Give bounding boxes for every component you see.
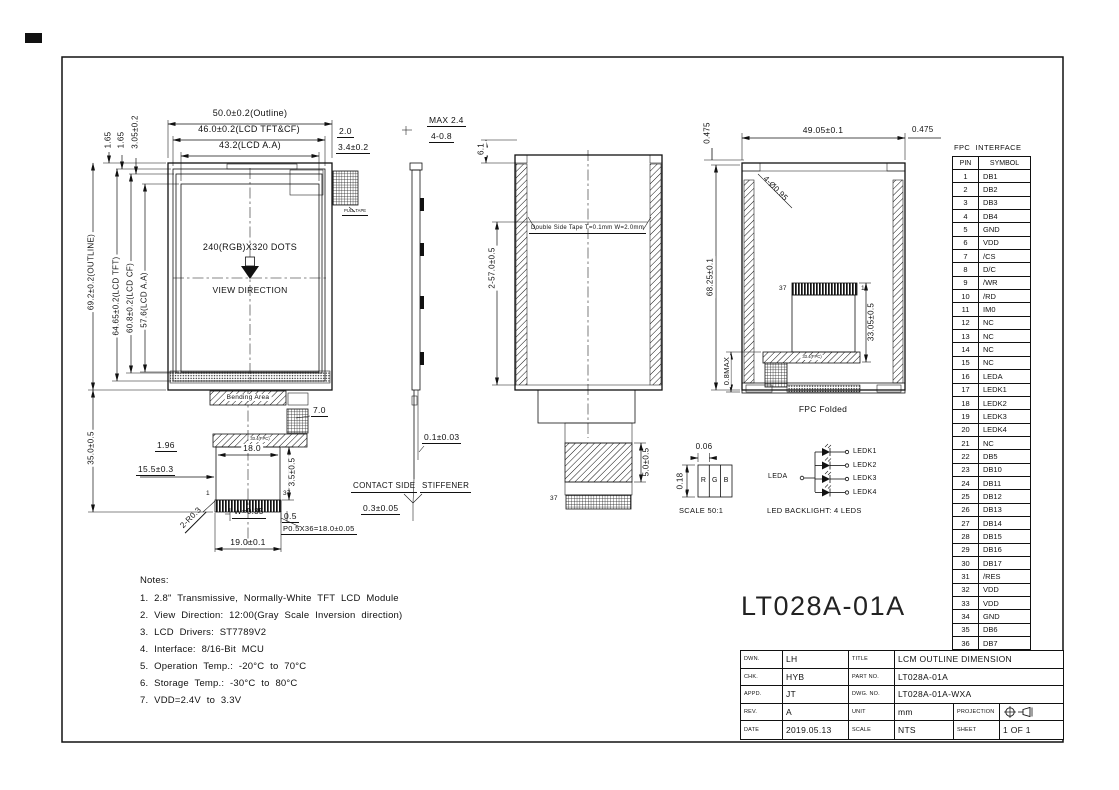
- pull-tape-label: PULL TAPE: [342, 209, 368, 216]
- pin-symbol: DB11: [979, 479, 1001, 488]
- dim-pin-width: W=0.35: [232, 508, 266, 519]
- dim-155: 15.5±0.3: [136, 465, 175, 476]
- side-view-linework: [402, 126, 424, 521]
- dim-7: 7.0: [311, 406, 328, 417]
- pin-symbol: LEDK4: [979, 425, 1007, 434]
- dwg-no-label: DWG. NO.: [849, 686, 895, 704]
- fpc-table-body: 1DB12DB23DB34DB45GND6VDD7/CS8D/C9/WR10/R…: [953, 170, 1030, 663]
- pin-number: 36: [953, 637, 979, 649]
- projection-symbol: [1000, 704, 1063, 722]
- pixel-b-label: B: [724, 477, 729, 485]
- table-row: 9/WR: [953, 277, 1030, 290]
- pin-number: 8: [953, 263, 979, 275]
- back-pin-first: 1: [861, 285, 865, 292]
- table-row: 12NC: [953, 317, 1030, 330]
- stiffener-label: STIFFENER: [420, 482, 471, 493]
- pin-number: 22: [953, 450, 979, 462]
- table-row: 26DB13: [953, 504, 1030, 517]
- pin-symbol: GND: [979, 225, 1000, 234]
- pin-number: 27: [953, 517, 979, 529]
- dim-fpc-height: 35.0±0.5: [88, 429, 97, 466]
- pin-number: 3: [953, 197, 979, 209]
- note-item: 6. Storage Temp.: -30°C to 80°C: [140, 675, 402, 692]
- pin-number: 17: [953, 384, 979, 396]
- appd-label: APPD.: [741, 686, 783, 704]
- table-row: 17LEDK1: [953, 384, 1030, 397]
- table-row: 34GND: [953, 610, 1030, 623]
- pin-symbol: DB2: [979, 185, 998, 194]
- note-item: 4. Interface: 8/16-Bit MCU: [140, 641, 402, 658]
- table-row: 1DB1: [953, 170, 1030, 183]
- table-row: 33VDD: [953, 597, 1030, 610]
- pin-symbol: DB5: [979, 452, 998, 461]
- pin-symbol: DB13: [979, 505, 1002, 514]
- pin-symbol: NC: [979, 439, 994, 448]
- back-view-linework: [704, 133, 941, 393]
- led-anode-label: LEDA: [768, 473, 788, 481]
- dim-outline-width: 50.0±0.2(Outline): [213, 109, 288, 119]
- dwn-label: DWN.: [741, 651, 783, 669]
- table-row: 28DB15: [953, 530, 1030, 543]
- dwg-no-value: LT028A-01A-WXA: [895, 686, 1063, 704]
- dim-08max: 0.8MAX: [723, 355, 731, 387]
- pixel-r-label: R: [701, 477, 706, 485]
- table-row: 10/RD: [953, 290, 1030, 303]
- dim-05: 0.5: [282, 512, 299, 523]
- pin-number: 19: [953, 410, 979, 422]
- notes-heading: Notes:: [140, 575, 402, 586]
- dim-max-thickness: MAX 2.4: [427, 116, 466, 127]
- dim-18: 18.0: [241, 444, 263, 453]
- fpc-folded-caption: FPC Folded: [799, 405, 847, 414]
- pin-symbol: D/C: [979, 265, 996, 274]
- dim-outline-height: 69.2±0.2(OUTLINE): [88, 232, 97, 312]
- pin-symbol: DB10: [979, 465, 1002, 474]
- pin-symbol: VDD: [979, 599, 999, 608]
- table-row: 14NC: [953, 343, 1030, 356]
- table-row: 24DB11: [953, 477, 1030, 490]
- table-row: 35DB6: [953, 624, 1030, 637]
- table-row: 6VDD: [953, 237, 1030, 250]
- pin-symbol: GND: [979, 612, 1000, 621]
- dim-offset-right: 0.475: [912, 126, 934, 135]
- back-pin-last: 37: [779, 285, 787, 292]
- pin-number: 2: [953, 183, 979, 195]
- note-item: 1. 2.8" Transmissive, Normally-White TFT…: [140, 590, 402, 607]
- pin-symbol: DB6: [979, 625, 998, 634]
- dim-330: 33.05±0.5: [868, 301, 877, 343]
- pin-symbol: /WR: [979, 278, 998, 287]
- pin-symbol: NC: [979, 318, 994, 327]
- dim-gap-2: 3.4±0.2: [336, 143, 370, 154]
- third-angle-projection-icon: [1003, 705, 1037, 719]
- dim-tabs: 4-0.8: [429, 132, 454, 143]
- dim-back-height: 68.25±0.1: [707, 256, 716, 298]
- note-item: 2. View Direction: 12:00(Gray Scale Inve…: [140, 607, 402, 624]
- pin-number: 13: [953, 330, 979, 342]
- sheet-value: 1 OF 1: [1000, 721, 1063, 739]
- contact-side-label: CONTACT SIDE: [351, 482, 417, 493]
- notes-section: Notes: 1. 2.8" Transmissive, Normally-Wh…: [140, 575, 402, 709]
- dim-cf-height: 60.8±0.2(LCD CF): [127, 261, 136, 335]
- pin-symbol: /RD: [979, 292, 996, 301]
- registration-mark: [25, 33, 42, 43]
- pin-number: 7: [953, 250, 979, 262]
- pin-symbol: DB17: [979, 559, 1002, 568]
- pin-symbol: LEDK1: [979, 385, 1007, 394]
- pin-number: 23: [953, 464, 979, 476]
- chk-value: HYB: [783, 669, 849, 687]
- pin-symbol: DB12: [979, 492, 1002, 501]
- led-circuit-linework: [800, 444, 849, 497]
- pixel-g-label: G: [712, 477, 718, 485]
- section-pin-last: 37: [550, 495, 558, 502]
- pin-symbol: /RES: [979, 572, 1001, 581]
- table-row: 13NC: [953, 330, 1030, 343]
- pin-number: 29: [953, 544, 979, 556]
- chk-label: CHK.: [741, 669, 783, 687]
- dim-top-offset-1: 1.65: [105, 132, 114, 149]
- table-row: 30DB17: [953, 557, 1030, 570]
- dim-offset-left: 0.475: [704, 122, 713, 144]
- pixel-detail-linework: [682, 453, 732, 497]
- pin-symbol: IM0: [979, 305, 996, 314]
- fpc-table-title: FPC INTERFACE: [954, 143, 1021, 152]
- dim-tft-width: 46.0±0.2(LCD TFT&CF): [198, 125, 300, 135]
- pin-number: 5: [953, 223, 979, 235]
- table-row: 19LEDK3: [953, 410, 1030, 423]
- table-row: 7/CS: [953, 250, 1030, 263]
- table-row: 11IM0: [953, 303, 1030, 316]
- pin-number: 20: [953, 424, 979, 436]
- pin-symbol: DB3: [979, 198, 998, 207]
- fpc-bar-label: 33.4(FPC): [248, 437, 271, 442]
- pin-number: 10: [953, 290, 979, 302]
- scale-value: NTS: [895, 721, 954, 739]
- dim-57: 2-57.0±0.5: [489, 245, 498, 290]
- pin-symbol: DB14: [979, 519, 1002, 528]
- fpc-interface-table: PIN SYMBOL 1DB12DB23DB34DB45GND6VDD7/CS8…: [952, 156, 1031, 664]
- led-cathode-label: LEDK2: [853, 462, 877, 470]
- table-row: 36DB7: [953, 637, 1030, 650]
- dim-top-offset-2: 1.65: [118, 132, 127, 149]
- note-item: 7. VDD=2.4V to 3.3V: [140, 692, 402, 709]
- table-row: 21NC: [953, 437, 1030, 450]
- appd-value: JT: [783, 686, 849, 704]
- part-no-label: PART NO.: [849, 669, 895, 687]
- table-row: 8D/C: [953, 263, 1030, 276]
- led-cathode-label: LEDK4: [853, 489, 877, 497]
- pin-number: 25: [953, 490, 979, 502]
- dim-pixel-height: 0.18: [677, 471, 686, 492]
- dim-50: 5.0±0.5: [643, 446, 652, 479]
- dim-pitch: P0.5X36=18.0±0.05: [281, 525, 357, 535]
- pin-number: 35: [953, 624, 979, 636]
- pin-number: 21: [953, 437, 979, 449]
- dim-61: 6.1: [478, 141, 487, 157]
- table-row: 22DB5: [953, 450, 1030, 463]
- table-row: 31/RES: [953, 570, 1030, 583]
- pin-symbol: DB16: [979, 545, 1002, 554]
- part-number-large: LT028A-01A: [741, 591, 906, 622]
- pin-number: 6: [953, 237, 979, 249]
- table-row: 4DB4: [953, 210, 1030, 223]
- pin-first-marker: 1: [206, 490, 210, 497]
- table-row: 2DB2: [953, 183, 1030, 196]
- note-item: 5. Operation Temp.: -20°C to 70°C: [140, 658, 402, 675]
- header-symbol: SYMBOL: [979, 160, 1030, 167]
- table-row: 25DB12: [953, 490, 1030, 503]
- projection-label: PROJECTION: [954, 704, 1000, 722]
- dim-gap-1: 2.0: [337, 127, 354, 138]
- table-header: PIN SYMBOL: [953, 157, 1030, 170]
- pin-number: 14: [953, 343, 979, 355]
- pin-number: 26: [953, 504, 979, 516]
- pin-symbol: NC: [979, 345, 994, 354]
- pin-symbol: DB1: [979, 172, 998, 181]
- sheet-label: SHEET: [954, 721, 1000, 739]
- header-pin: PIN: [953, 157, 979, 169]
- pin-symbol: VDD: [979, 585, 999, 594]
- pin-number: 24: [953, 477, 979, 489]
- pin-number: 16: [953, 370, 979, 382]
- dim-tft-height: 64.65±0.2(LCD TFT): [113, 254, 122, 337]
- pixel-scale-caption: SCALE 50:1: [679, 507, 723, 515]
- table-row: 18LEDK2: [953, 397, 1030, 410]
- notes-list: 1. 2.8" Transmissive, Normally-White TFT…: [140, 590, 402, 709]
- bending-area-label: Bending Area: [225, 394, 272, 401]
- dim-top-offset-3: 3.05±0.2: [132, 115, 141, 148]
- table-row: 20LEDK4: [953, 424, 1030, 437]
- table-row: 27DB14: [953, 517, 1030, 530]
- title-label: TITLE: [849, 651, 895, 669]
- led-cathode-label: LEDK1: [853, 448, 877, 456]
- pin-number: 18: [953, 397, 979, 409]
- view-direction-label: VIEW DIRECTION: [212, 286, 287, 295]
- pin-number: 9: [953, 277, 979, 289]
- table-row: 5GND: [953, 223, 1030, 236]
- pin-number: 31: [953, 570, 979, 582]
- pin-last-marker: 37: [283, 490, 291, 497]
- pin-number: 33: [953, 597, 979, 609]
- title-value: LCM OUTLINE DIMENSION: [895, 651, 1063, 669]
- table-row: 32VDD: [953, 584, 1030, 597]
- pin-symbol: DB4: [979, 212, 998, 221]
- drawing-sheet: 50.0±0.2(Outline) 46.0±0.2(LCD TFT&CF) 4…: [0, 0, 1119, 790]
- pin-number: 28: [953, 530, 979, 542]
- pin-number: 4: [953, 210, 979, 222]
- pin-number: 15: [953, 357, 979, 369]
- scale-label: SCALE: [849, 721, 895, 739]
- pin-symbol: NC: [979, 332, 994, 341]
- rev-value: A: [783, 704, 849, 722]
- pin-symbol: DB7: [979, 639, 998, 648]
- pin-number: 30: [953, 557, 979, 569]
- dim-aa-height: 57.6(LCD A.A): [141, 270, 150, 329]
- table-row: 16LEDA: [953, 370, 1030, 383]
- table-row: 29DB16: [953, 544, 1030, 557]
- dwn-value: LH: [783, 651, 849, 669]
- pin-number: 1: [953, 170, 979, 182]
- led-backlight-caption: LED BACKLIGHT: 4 LEDS: [767, 507, 862, 515]
- pin-symbol: DB15: [979, 532, 1002, 541]
- date-label: DATE: [741, 721, 783, 739]
- unit-label: UNIT: [849, 704, 895, 722]
- pin-symbol: LEDK2: [979, 399, 1007, 408]
- led-cathode-label: LEDK3: [853, 475, 877, 483]
- rev-label: REV.: [741, 704, 783, 722]
- pin-symbol: LEDK3: [979, 412, 1007, 421]
- dim-196: 1.96: [155, 441, 177, 452]
- section-view-linework: [481, 140, 662, 509]
- unit-value: mm: [895, 704, 954, 722]
- dim-01: 0.1±0.03: [422, 433, 461, 444]
- pin-number: 34: [953, 610, 979, 622]
- dim-aa-width: 43.2(LCD A.A): [219, 141, 281, 151]
- dim-back-width: 49.05±0.1: [803, 126, 843, 135]
- pin-symbol: NC: [979, 358, 994, 367]
- date-value: 2019.05.13: [783, 721, 849, 739]
- dim-pixel-width: 0.06: [696, 443, 713, 452]
- pin-symbol: LEDA: [979, 372, 1003, 381]
- table-row: 23DB10: [953, 464, 1030, 477]
- dim-35t: 3.5±0.5: [289, 456, 298, 489]
- tape-annotation: Double Side Tape T=0.1mm W=2.0mm: [529, 225, 646, 234]
- title-block: DWN. LH TITLE LCM OUTLINE DIMENSION CHK.…: [740, 650, 1064, 740]
- table-row: 3DB3: [953, 197, 1030, 210]
- pin-number: 32: [953, 584, 979, 596]
- dim-03: 0.3±0.05: [361, 504, 400, 515]
- front-view-linework: [88, 120, 358, 552]
- note-item: 3. LCD Drivers: ST7789V2: [140, 624, 402, 641]
- dim-19: 19.0±0.1: [230, 538, 265, 547]
- pin-symbol: VDD: [979, 238, 999, 247]
- pin-number: 12: [953, 317, 979, 329]
- pin-number: 11: [953, 303, 979, 315]
- back-fpc-bar-label: 33.4(FPC): [800, 355, 823, 360]
- table-row: 15NC: [953, 357, 1030, 370]
- resolution-label: 240(RGB)X320 DOTS: [203, 243, 297, 253]
- pin-symbol: /CS: [979, 252, 996, 261]
- part-no-value: LT028A-01A: [895, 669, 1063, 687]
